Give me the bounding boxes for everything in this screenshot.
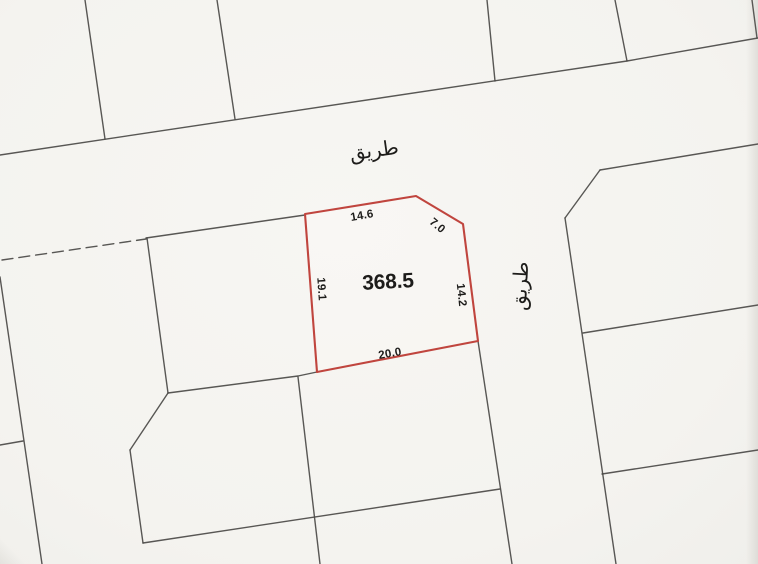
dashed-boundary [2, 239, 146, 260]
road-name-horizontal: طريق [348, 135, 400, 166]
parcel-divider [147, 238, 168, 393]
parcel-divider [85, 0, 105, 139]
parcel-divider [583, 305, 758, 333]
cadastral-map: طريق طريق 368.5 14.6 7.0 14.2 20.0 19.1 [0, 0, 758, 564]
parcel-top-edge [146, 215, 305, 238]
road-west-edge [478, 341, 512, 564]
plot-dimension-right: 14.2 [454, 283, 468, 307]
parcel-chamfer-edge [565, 170, 600, 218]
plot-area-label: 368.5 [362, 269, 415, 295]
road-name-vertical: طريق [507, 261, 534, 311]
parcel-divider [0, 441, 23, 445]
parcel-divider [487, 0, 495, 81]
parcel-west-edge [0, 277, 42, 564]
parcel-divider [217, 0, 235, 119]
parcel-diagonal-edge [143, 489, 500, 543]
road-east-edge [565, 218, 616, 564]
parcel-divider [298, 377, 320, 564]
parcel-chamfer-edge [130, 393, 168, 450]
parcel-divider [602, 450, 758, 474]
plot-dimension-left: 19.1 [314, 277, 328, 301]
road-south-edge [600, 144, 758, 170]
parcel-divider [615, 0, 627, 61]
parcel-divider [752, 0, 757, 38]
parcel-side-edge [130, 450, 143, 543]
plot-dimension-bottom: 20.0 [378, 346, 403, 362]
parcel-bottom-edge [168, 372, 317, 393]
